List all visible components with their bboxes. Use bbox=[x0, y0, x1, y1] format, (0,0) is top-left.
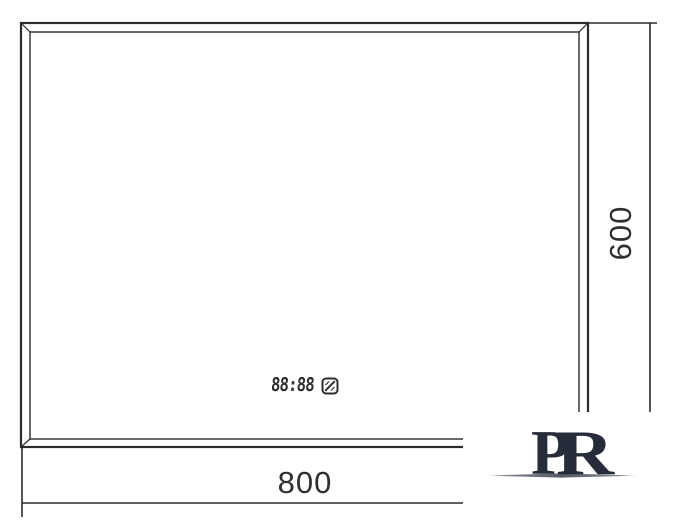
brand-logo-area: P R bbox=[463, 412, 674, 532]
height-dimension-label: 600 bbox=[605, 173, 637, 293]
monogram-letter-r: R bbox=[556, 417, 615, 488]
defog-icon bbox=[321, 377, 339, 395]
mirror-spec-drawing: 800 600 88:88 bbox=[0, 0, 674, 532]
miter-top-right bbox=[579, 23, 588, 32]
miter-top-left bbox=[21, 23, 30, 32]
clock-display-group: 88:88 bbox=[271, 376, 339, 395]
brand-monogram: P R bbox=[463, 412, 674, 532]
clock-digits: 88:88 bbox=[270, 376, 314, 395]
miter-bottom-left bbox=[21, 439, 30, 447]
